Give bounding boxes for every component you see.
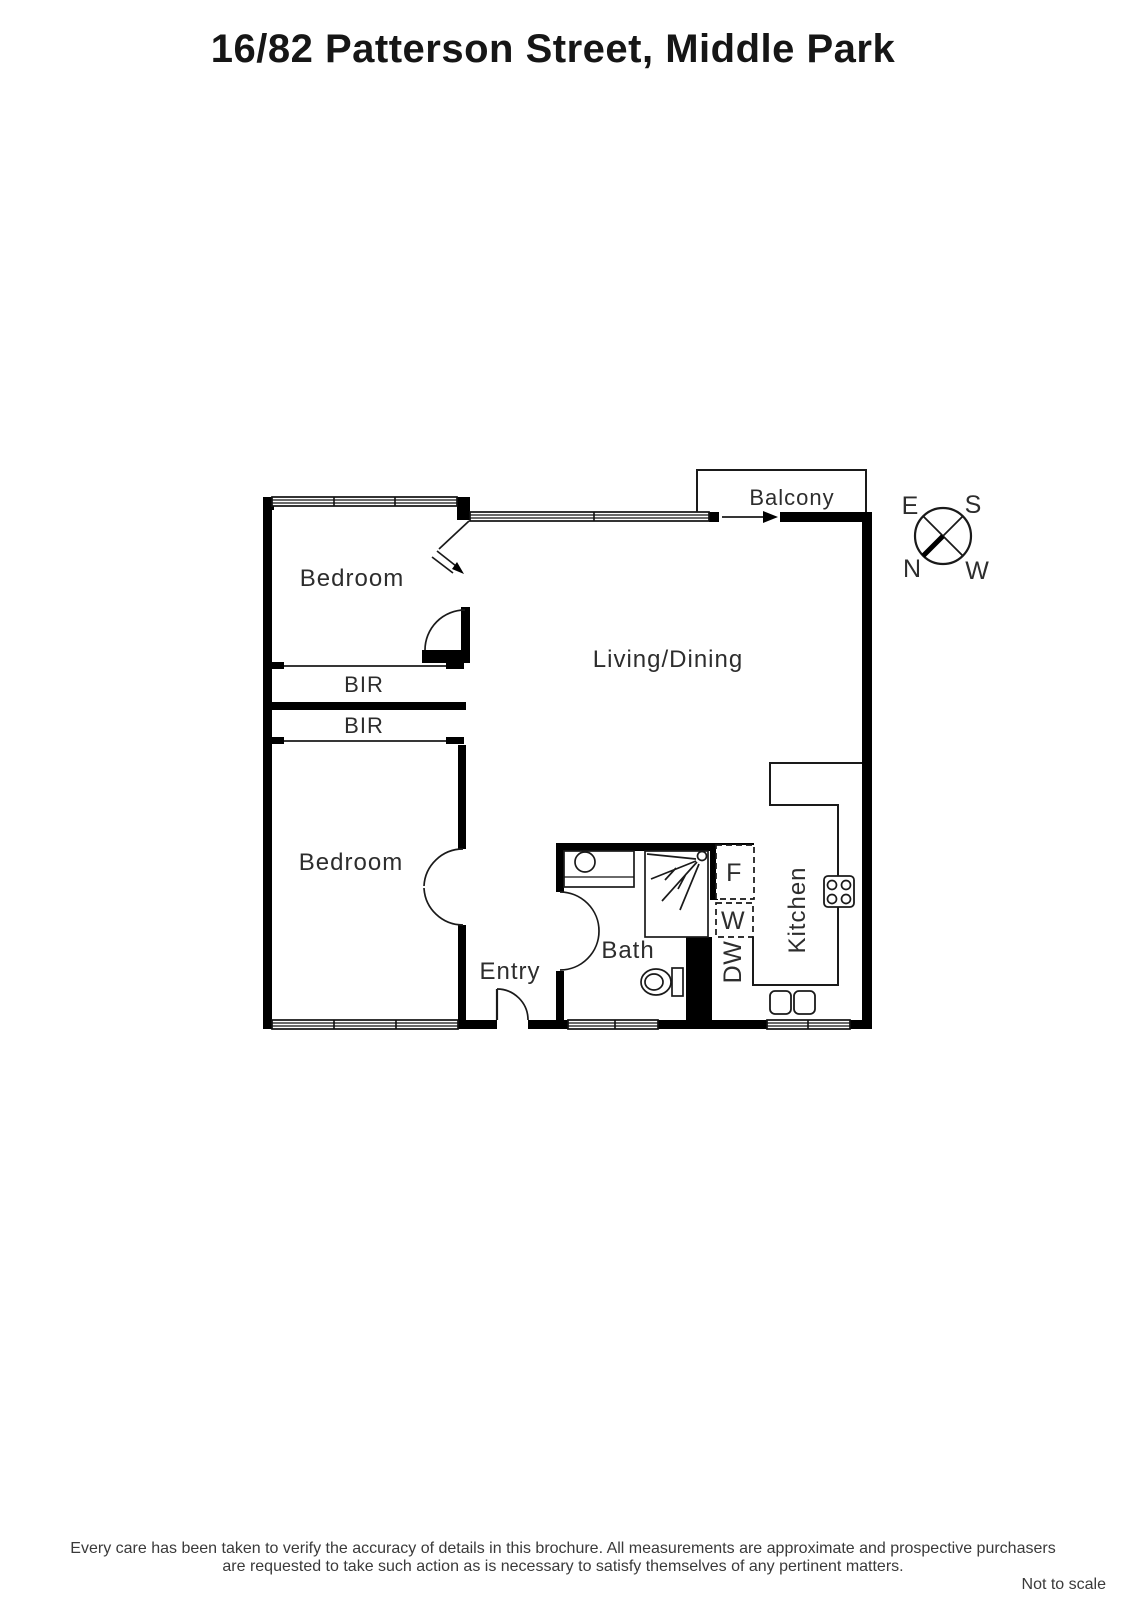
kitchen-sink	[770, 991, 815, 1014]
bir-bottom-label: BIR	[344, 713, 384, 738]
vanity-basin	[575, 852, 595, 872]
balcony-label: Balcony	[749, 485, 834, 510]
window-bath-bottom	[568, 1020, 658, 1029]
bir-bottom-slider-cap-right	[446, 737, 464, 744]
door-bath-arc-top	[560, 892, 599, 931]
label-bedroom-top: Bedroom	[300, 565, 404, 592]
wall-bath-left-upper	[556, 851, 564, 892]
wall-top-block-bedroom	[457, 497, 470, 520]
compass-s: S	[965, 491, 982, 519]
wall-bedroom2-right-upper	[458, 745, 466, 849]
shower	[645, 851, 708, 937]
bir-top-slider-cap-right	[446, 662, 464, 669]
disclaimer-line1: Every care has been taken to verify the …	[70, 1540, 1055, 1557]
toilet	[641, 968, 683, 996]
wall-left	[263, 497, 272, 1029]
wall-bedroom1-door-stub	[461, 607, 470, 652]
footer: Every care has been taken to verify the …	[70, 1540, 1106, 1593]
shower-spray	[647, 854, 699, 910]
dishwasher-label: DW	[719, 941, 747, 984]
bir-bottom-slider-cap-left	[266, 737, 284, 744]
floorplan-page: 16/82 Patterson Street, Middle Park	[0, 0, 1131, 1600]
door-bedroom2-arc-top	[424, 849, 463, 886]
door-entry-arc	[497, 989, 528, 1020]
wall-bir-middle	[263, 702, 466, 710]
bir-top-label: BIR	[344, 672, 384, 697]
cooktop	[824, 876, 854, 907]
wall-right	[862, 512, 872, 1029]
doors	[424, 521, 599, 1020]
wall-column-bath-kitchen	[686, 937, 712, 1020]
compass-north-pointer	[923, 536, 943, 556]
label-bath: Bath	[601, 937, 654, 964]
wall-bottom-corner-left	[263, 1020, 272, 1029]
compass-line-s	[943, 516, 963, 536]
not-to-scale-note: Not to scale	[1022, 1576, 1107, 1593]
wall-bedroom2-right-lower	[458, 925, 466, 1020]
window-living	[470, 512, 709, 521]
compass: E S N W	[902, 491, 990, 585]
label-bedroom-bottom: Bedroom	[299, 849, 403, 876]
toilet-cistern	[672, 968, 683, 996]
wall-bottom-seg3	[658, 1020, 767, 1029]
wall-top-block-window-end	[709, 512, 719, 522]
floor-plan: Balcony BIR BIR	[263, 470, 989, 1029]
fridge-label: F	[726, 859, 742, 887]
compass-n: N	[903, 555, 921, 583]
label-living-dining: Living/Dining	[593, 646, 743, 673]
window-kitchen-bottom	[767, 1020, 850, 1029]
window-bedroom-top	[272, 497, 457, 506]
wall-top-balcony	[780, 512, 872, 522]
wall-bottom-seg4	[850, 1020, 872, 1029]
label-entry: Entry	[479, 958, 540, 985]
door-bath-arc-bottom	[560, 931, 599, 970]
wall-bottom-seg2	[528, 1020, 568, 1029]
label-kitchen: Kitchen	[784, 866, 811, 953]
vanity	[564, 851, 634, 887]
compass-e: E	[902, 492, 919, 520]
washer-label: W	[721, 907, 745, 935]
window-bedroom-bottom	[272, 1020, 458, 1029]
compass-w: W	[965, 557, 989, 585]
shower-head	[698, 852, 707, 861]
wall-bath-left-lower	[556, 971, 564, 1020]
page-title: 16/82 Patterson Street, Middle Park	[211, 27, 896, 71]
door-bedroom2-arc-bottom	[424, 888, 463, 925]
disclaimer-line2: are requested to take such action as is …	[222, 1558, 903, 1575]
bir-top-slider-cap-left	[266, 662, 284, 669]
wall-bottom-seg1	[458, 1020, 497, 1029]
door-bedroom1-slider-indicator	[432, 521, 469, 574]
door-bedroom1-arc	[425, 610, 465, 650]
balcony-door-arrow-head	[763, 511, 778, 523]
